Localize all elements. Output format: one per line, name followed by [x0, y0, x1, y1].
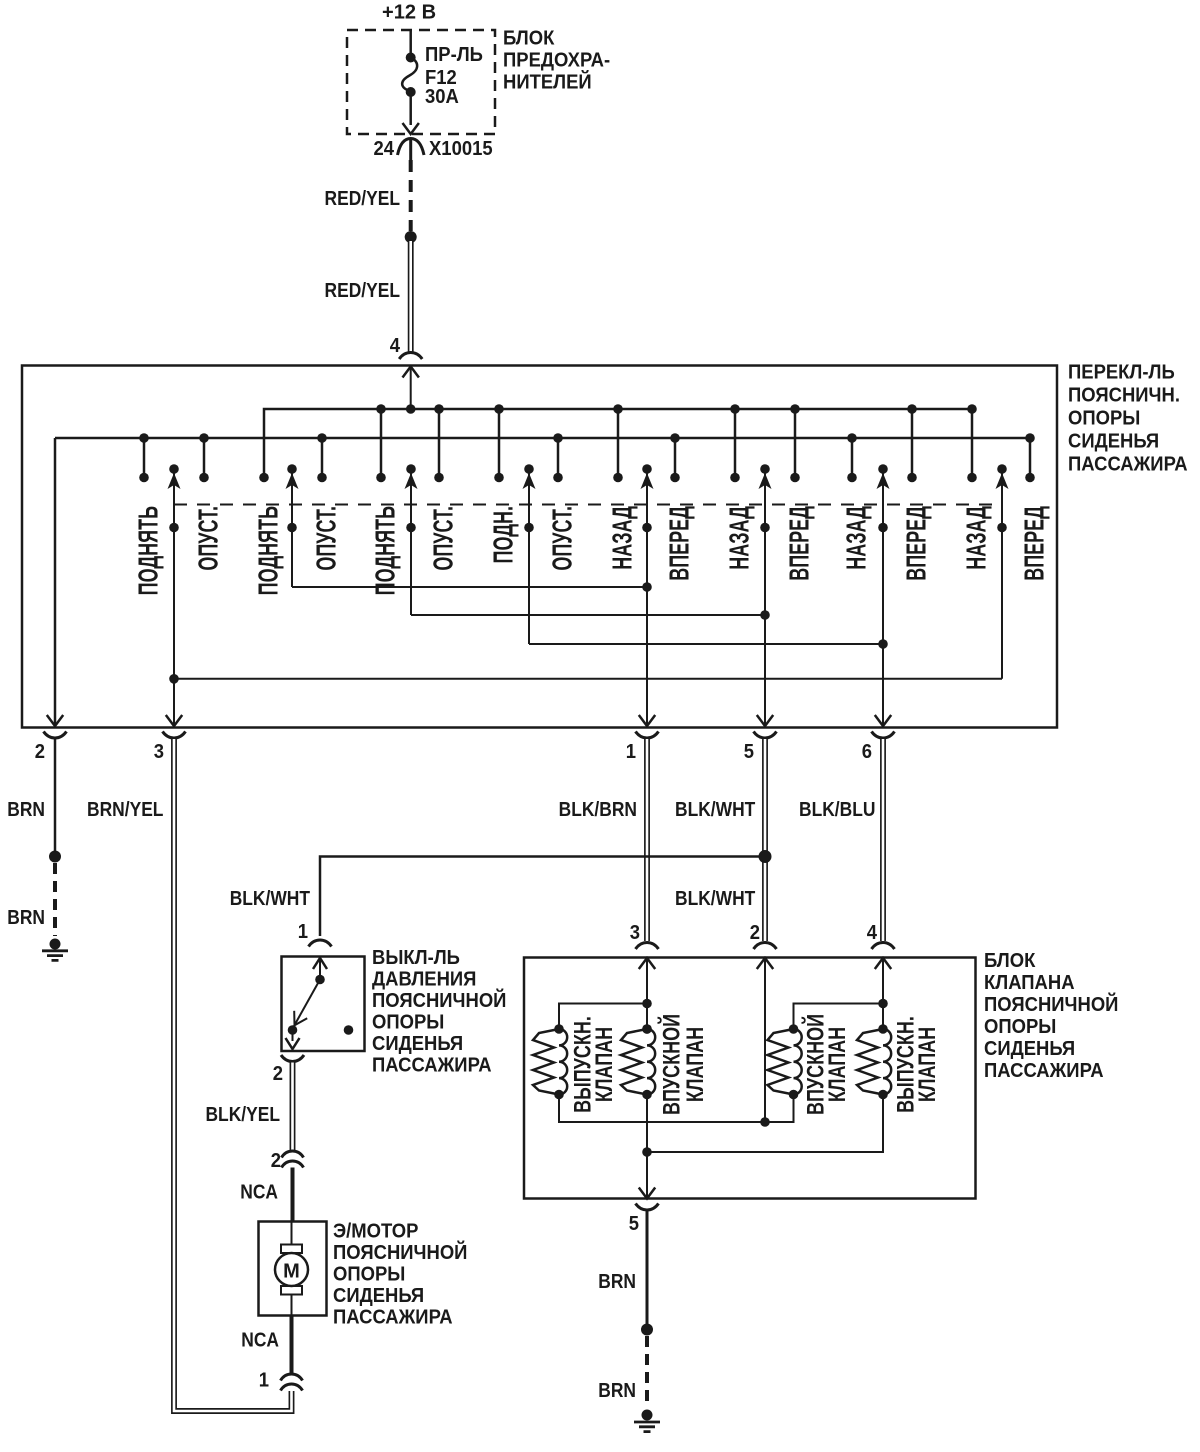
svg-text:ПР-ЛЬ: ПР-ЛЬ — [425, 43, 483, 66]
svg-text:СИДЕНЬЯ: СИДЕНЬЯ — [984, 1037, 1075, 1060]
svg-text:NCA: NCA — [240, 1181, 278, 1204]
svg-text:ПОДНЯТЬ: ПОДНЯТЬ — [132, 506, 163, 595]
svg-text:1: 1 — [298, 920, 308, 943]
svg-text:ВПЕРЕД: ВПЕРЕД — [663, 506, 694, 581]
svg-text:ВПЕРЕД: ВПЕРЕД — [900, 506, 931, 581]
svg-text:RED/YEL: RED/YEL — [325, 280, 401, 303]
svg-text:BLK/BLU: BLK/BLU — [799, 799, 875, 822]
svg-text:ПОДНЯТЬ: ПОДНЯТЬ — [369, 506, 400, 595]
svg-text:СИДЕНЬЯ: СИДЕНЬЯ — [333, 1284, 424, 1307]
svg-text:ПАССАЖИРА: ПАССАЖИРА — [333, 1306, 453, 1329]
svg-text:M: M — [283, 1261, 300, 1283]
svg-text:КЛАПАН: КЛАПАН — [591, 1027, 617, 1102]
svg-text:ПОЯСНИЧНОЙ: ПОЯСНИЧНОЙ — [372, 987, 506, 1012]
svg-text:ОПОРЫ: ОПОРЫ — [1068, 407, 1140, 430]
svg-text:BLK/WHT: BLK/WHT — [675, 799, 756, 822]
svg-text:+12 В: +12 В — [382, 1, 436, 23]
svg-text:СИДЕНЬЯ: СИДЕНЬЯ — [1068, 430, 1159, 453]
svg-text:5: 5 — [629, 1212, 639, 1235]
svg-text:4: 4 — [390, 334, 400, 357]
svg-text:5: 5 — [744, 740, 754, 763]
svg-text:30A: 30A — [425, 85, 459, 108]
svg-text:КЛАПАН: КЛАПАН — [914, 1027, 940, 1102]
svg-text:BLK/YEL: BLK/YEL — [205, 1104, 280, 1127]
svg-text:БЛОК: БЛОК — [984, 949, 1035, 972]
svg-text:ВПЕРЕД: ВПЕРЕД — [783, 506, 814, 581]
svg-text:ОПУСТ.: ОПУСТ. — [427, 506, 458, 571]
svg-text:ОПОРЫ: ОПОРЫ — [984, 1015, 1056, 1038]
svg-text:ВПЕРЕД: ВПЕРЕД — [1018, 506, 1049, 581]
svg-text:ОПУСТ.: ОПУСТ. — [310, 506, 341, 571]
svg-text:6: 6 — [862, 740, 872, 763]
svg-text:КЛАПАНА: КЛАПАНА — [984, 971, 1075, 994]
svg-text:BLK/WHT: BLK/WHT — [675, 888, 756, 911]
svg-text:BRN/YEL: BRN/YEL — [87, 799, 164, 822]
svg-text:ПЕРЕКЛ-ЛЬ: ПЕРЕКЛ-ЛЬ — [1068, 361, 1175, 384]
svg-text:ПОДН.: ПОДН. — [487, 506, 518, 563]
svg-text:ПОЯСНИЧН.: ПОЯСНИЧН. — [1068, 384, 1180, 407]
svg-text:ВПУСКНОЙ: ВПУСКНОЙ — [657, 1014, 685, 1115]
svg-text:ОПУСТ.: ОПУСТ. — [546, 506, 577, 571]
svg-text:ПОЯСНИЧНОЙ: ПОЯСНИЧНОЙ — [984, 991, 1118, 1016]
svg-text:2: 2 — [271, 1149, 281, 1172]
svg-text:БЛОК: БЛОК — [503, 27, 554, 50]
svg-text:НАЗАД: НАЗАД — [606, 506, 637, 570]
svg-text:ОПОРЫ: ОПОРЫ — [372, 1011, 444, 1034]
svg-text:24: 24 — [373, 137, 394, 160]
svg-text:Э/МОТОР: Э/МОТОР — [333, 1220, 418, 1243]
svg-text:4: 4 — [867, 921, 877, 944]
svg-text:НАЗАД: НАЗАД — [960, 506, 991, 570]
svg-text:ПОЯСНИЧНОЙ: ПОЯСНИЧНОЙ — [333, 1239, 467, 1264]
svg-text:BRN: BRN — [598, 1271, 636, 1294]
svg-text:2: 2 — [273, 1062, 283, 1085]
svg-text:ПАССАЖИРА: ПАССАЖИРА — [984, 1059, 1104, 1082]
svg-text:ОПУСТ.: ОПУСТ. — [192, 506, 223, 571]
svg-text:1: 1 — [259, 1369, 269, 1392]
svg-text:RED/YEL: RED/YEL — [325, 188, 401, 211]
svg-text:НАЗАД: НАЗАД — [840, 506, 871, 570]
svg-text:КЛАПАН: КЛАПАН — [682, 1027, 708, 1102]
svg-text:СИДЕНЬЯ: СИДЕНЬЯ — [372, 1032, 463, 1055]
svg-text:3: 3 — [630, 921, 640, 944]
svg-text:ПАССАЖИРА: ПАССАЖИРА — [1068, 453, 1188, 476]
svg-text:NCA: NCA — [241, 1329, 279, 1352]
svg-text:3: 3 — [154, 740, 164, 763]
svg-text:BLK/WHT: BLK/WHT — [230, 888, 311, 911]
svg-text:X10015: X10015 — [429, 137, 493, 160]
svg-text:BRN: BRN — [7, 799, 45, 822]
svg-text:НИТЕЛЕЙ: НИТЕЛЕЙ — [503, 69, 592, 94]
svg-text:ПРЕДОХРА-: ПРЕДОХРА- — [503, 49, 610, 72]
svg-text:BRN: BRN — [598, 1380, 636, 1403]
svg-text:ПОДНЯТЬ: ПОДНЯТЬ — [252, 506, 283, 595]
svg-text:ДАВЛЕНИЯ: ДАВЛЕНИЯ — [372, 968, 476, 991]
svg-text:ОПОРЫ: ОПОРЫ — [333, 1263, 405, 1286]
svg-text:BLK/BRN: BLK/BRN — [559, 799, 637, 822]
svg-text:BRN: BRN — [7, 907, 45, 930]
svg-text:НАЗАД: НАЗАД — [723, 506, 754, 570]
svg-text:2: 2 — [35, 740, 45, 763]
svg-text:2: 2 — [750, 921, 760, 944]
svg-text:ВЫКЛ-ЛЬ: ВЫКЛ-ЛЬ — [372, 946, 460, 969]
svg-text:КЛАПАН: КЛАПАН — [824, 1027, 850, 1102]
svg-text:ПАССАЖИРА: ПАССАЖИРА — [372, 1054, 492, 1077]
svg-text:1: 1 — [626, 740, 636, 763]
